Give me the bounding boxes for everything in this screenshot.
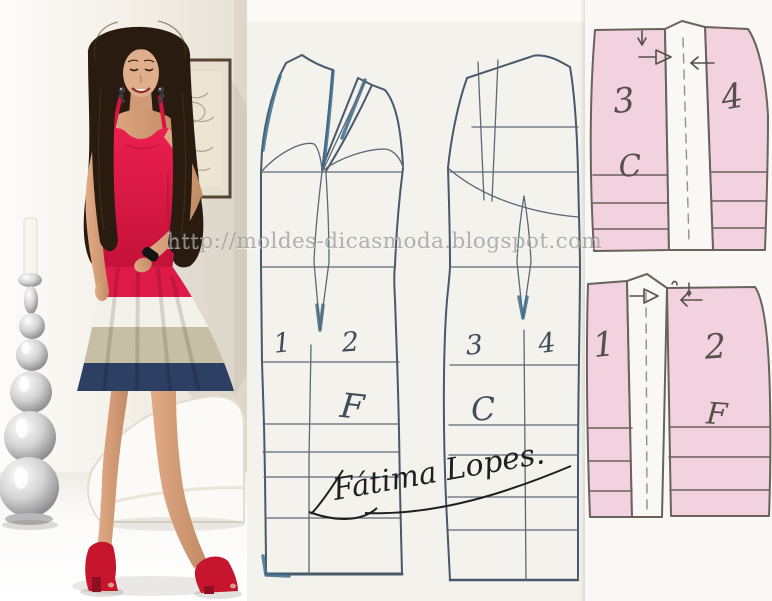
- sheet-top-margin: [247, 0, 585, 22]
- back-skirt-piece: 3 4 C: [591, 21, 768, 251]
- back-label-C: C: [470, 389, 497, 429]
- model-photo: [0, 0, 247, 601]
- designer-signature: Fátima Lopes.: [309, 436, 571, 519]
- pattern-draft-drawing: 1 2 F: [247, 0, 585, 601]
- front-piece-number-1: 1: [272, 327, 292, 360]
- piece-number-2: 2: [702, 326, 727, 367]
- candle: [24, 218, 37, 276]
- piece-number-3: 3: [611, 80, 637, 122]
- pattern-collage-image: 1 2 F: [0, 0, 772, 601]
- model-photo-scene: [0, 0, 247, 601]
- left-hand: [95, 281, 109, 301]
- front-skirt-piece: 1 2 F: [587, 274, 770, 517]
- back-dart-mark: [519, 297, 527, 318]
- front-label-F: F: [337, 386, 367, 428]
- center-strip: [665, 21, 713, 250]
- pattern-pieces-sheet: 3 4 C: [585, 0, 772, 601]
- piece-label-F: F: [704, 396, 729, 433]
- pattern-draft-sheet: 1 2 F: [247, 0, 585, 601]
- skirt-band-navy: [60, 363, 247, 393]
- pattern-pieces-drawing: 3 4 C: [585, 0, 772, 601]
- front-piece-number-2: 2: [340, 326, 360, 358]
- back-piece-number-4: 4: [535, 327, 557, 360]
- piece-number-1: 1: [591, 324, 617, 366]
- back-piece-number-3: 3: [464, 329, 484, 361]
- piece-label-C: C: [617, 148, 643, 185]
